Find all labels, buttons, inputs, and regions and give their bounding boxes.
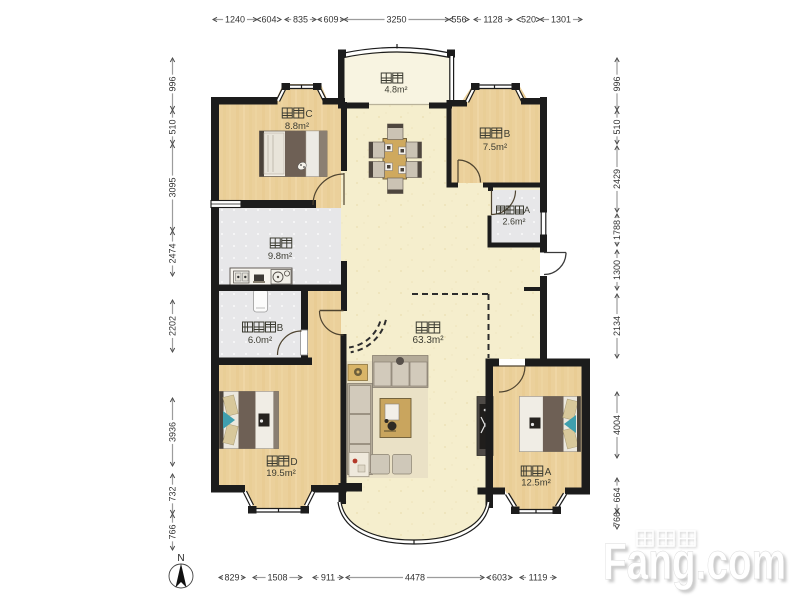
svg-text:603: 603 <box>492 573 507 583</box>
svg-text:1300: 1300 <box>612 260 622 280</box>
svg-text:911: 911 <box>321 573 335 583</box>
svg-text:B: B <box>277 323 284 334</box>
svg-text:996: 996 <box>168 76 178 91</box>
svg-text:556: 556 <box>451 15 466 25</box>
svg-text:510: 510 <box>612 119 622 134</box>
svg-text:520: 520 <box>521 15 536 25</box>
svg-text:4478: 4478 <box>405 573 425 583</box>
svg-text:829: 829 <box>224 573 239 583</box>
svg-text:9.8m²: 9.8m² <box>268 251 292 262</box>
svg-text:1240: 1240 <box>225 15 245 25</box>
svg-text:6.0m²: 6.0m² <box>248 335 272 346</box>
svg-text:2134: 2134 <box>612 316 622 336</box>
svg-text:1788: 1788 <box>612 220 622 240</box>
svg-text:604: 604 <box>261 15 276 25</box>
svg-text:609: 609 <box>323 15 338 25</box>
svg-text:732: 732 <box>168 486 178 501</box>
svg-text:D: D <box>290 457 297 468</box>
svg-text:B: B <box>504 129 511 140</box>
svg-text:1128: 1128 <box>483 15 502 25</box>
svg-text:3250: 3250 <box>386 15 406 25</box>
svg-text:2.6m²: 2.6m² <box>502 217 525 227</box>
svg-text:3936: 3936 <box>168 422 178 442</box>
svg-text:8.8m²: 8.8m² <box>285 121 309 132</box>
svg-text:19.5m²: 19.5m² <box>266 468 296 479</box>
svg-text:1119: 1119 <box>529 573 548 583</box>
svg-text:A: A <box>524 205 530 215</box>
svg-text:766: 766 <box>168 524 178 539</box>
svg-text:1508: 1508 <box>267 573 287 583</box>
svg-text:4.8m²: 4.8m² <box>384 85 407 95</box>
svg-text:A: A <box>545 467 552 478</box>
svg-text:N: N <box>177 553 184 564</box>
svg-text:510: 510 <box>168 119 178 134</box>
svg-text:12.5m²: 12.5m² <box>521 478 551 489</box>
svg-text:63.3m²: 63.3m² <box>412 335 444 346</box>
svg-text:996: 996 <box>612 76 622 91</box>
svg-text:C: C <box>305 109 312 120</box>
svg-text:664: 664 <box>612 487 622 502</box>
svg-text:7.5m²: 7.5m² <box>483 142 507 153</box>
svg-text:766: 766 <box>612 512 622 527</box>
svg-text:835: 835 <box>293 15 308 25</box>
svg-text:3095: 3095 <box>168 177 178 197</box>
svg-text:4004: 4004 <box>612 415 622 435</box>
svg-text:2474: 2474 <box>168 243 178 263</box>
svg-text:2429: 2429 <box>612 169 622 189</box>
svg-text:2202: 2202 <box>168 316 178 336</box>
svg-text:1301: 1301 <box>551 15 571 25</box>
